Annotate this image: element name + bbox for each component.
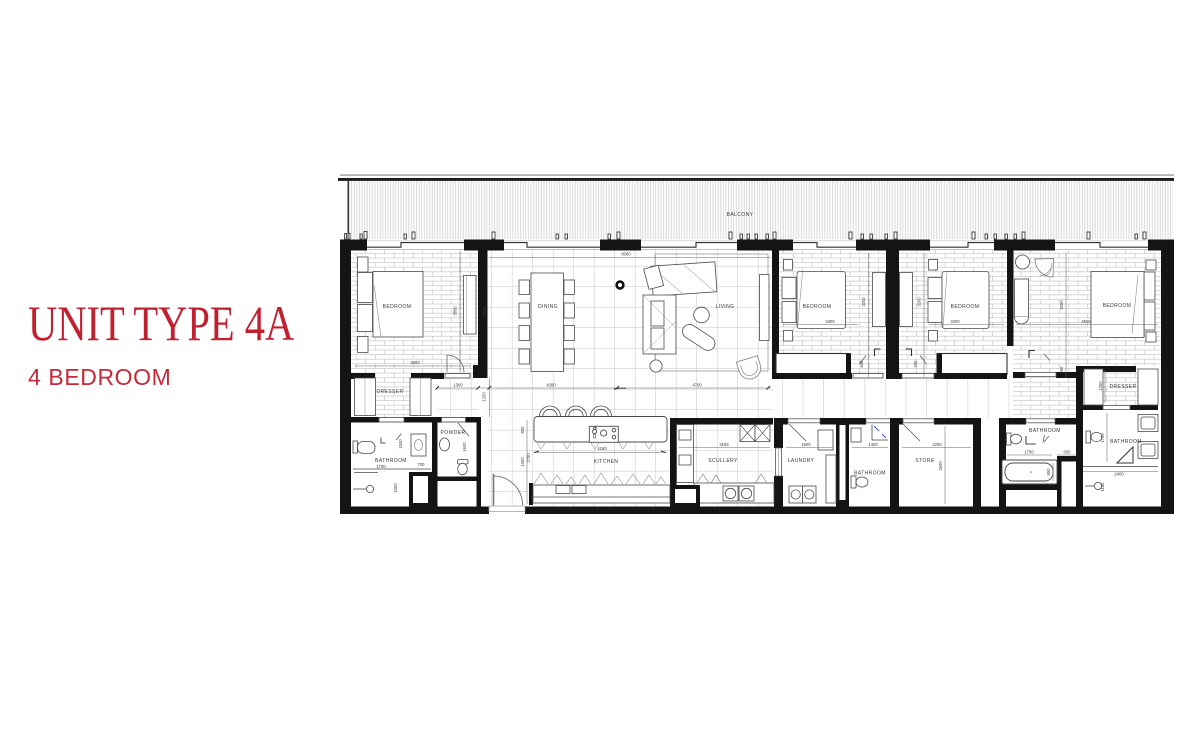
svg-text:4160: 4160	[597, 446, 607, 451]
svg-text:800: 800	[520, 426, 525, 434]
svg-text:2700: 2700	[526, 453, 531, 463]
svg-text:2400: 2400	[1114, 472, 1124, 477]
svg-text:DRESSER: DRESSER	[377, 389, 404, 395]
svg-text:BATHROOM: BATHROOM	[854, 471, 886, 477]
svg-text:700: 700	[418, 462, 426, 467]
svg-text:BATHROOM: BATHROOM	[1110, 439, 1142, 445]
svg-text:1200: 1200	[482, 392, 487, 402]
svg-text:3200: 3200	[861, 297, 866, 307]
svg-text:DINING: DINING	[538, 304, 558, 310]
svg-text:BEDROOM: BEDROOM	[383, 304, 412, 310]
svg-text:1700: 1700	[376, 464, 386, 469]
svg-text:3400: 3400	[950, 319, 960, 324]
svg-text:3155: 3155	[719, 442, 729, 447]
svg-text:3200: 3200	[917, 297, 922, 307]
svg-text:3850: 3850	[453, 306, 458, 316]
svg-text:4700: 4700	[692, 383, 702, 388]
svg-text:BEDROOM: BEDROOM	[1103, 303, 1132, 309]
svg-text:600: 600	[859, 360, 864, 368]
svg-text:LAUNDRY: LAUNDRY	[788, 458, 815, 464]
svg-text:DRESSER: DRESSER	[1110, 384, 1137, 390]
svg-text:600: 600	[913, 360, 918, 368]
svg-text:1200: 1200	[1098, 381, 1103, 391]
svg-text:BEDROOM: BEDROOM	[803, 304, 832, 310]
svg-text:BATHROOM: BATHROOM	[1029, 428, 1061, 434]
svg-text:1750: 1750	[1024, 450, 1034, 455]
svg-text:SCULLERY: SCULLERY	[708, 458, 738, 464]
svg-text:1600: 1600	[462, 442, 467, 452]
svg-text:1400: 1400	[868, 442, 878, 447]
svg-text:STORE: STORE	[915, 458, 934, 464]
svg-text:BALCONY: BALCONY	[727, 212, 754, 218]
svg-text:2250: 2250	[932, 442, 942, 447]
svg-text:4300: 4300	[546, 383, 556, 388]
svg-text:LIVING: LIVING	[716, 304, 735, 310]
svg-text:300: 300	[1059, 366, 1064, 374]
svg-text:8060: 8060	[621, 251, 631, 256]
svg-text:3800: 3800	[410, 360, 420, 365]
svg-text:3400: 3400	[825, 319, 835, 324]
svg-text:4500: 4500	[1081, 319, 1091, 324]
svg-text:650: 650	[1064, 450, 1072, 455]
svg-text:KITCHEN: KITCHEN	[594, 459, 619, 465]
svg-text:1300: 1300	[453, 383, 463, 388]
svg-text:POWDER: POWDER	[441, 430, 466, 436]
svg-text:1180: 1180	[1100, 482, 1105, 492]
svg-text:BEDROOM: BEDROOM	[951, 304, 980, 310]
svg-text:1720: 1720	[1100, 433, 1105, 443]
svg-text:1300: 1300	[520, 457, 525, 467]
svg-text:850: 850	[1046, 468, 1051, 476]
svg-text:3650: 3650	[482, 306, 487, 316]
svg-text:1000: 1000	[393, 483, 398, 493]
svg-text:2600: 2600	[938, 461, 943, 471]
svg-text:1500: 1500	[398, 439, 403, 449]
svg-text:1600: 1600	[801, 442, 811, 447]
svg-text:3050: 3050	[1059, 300, 1064, 310]
